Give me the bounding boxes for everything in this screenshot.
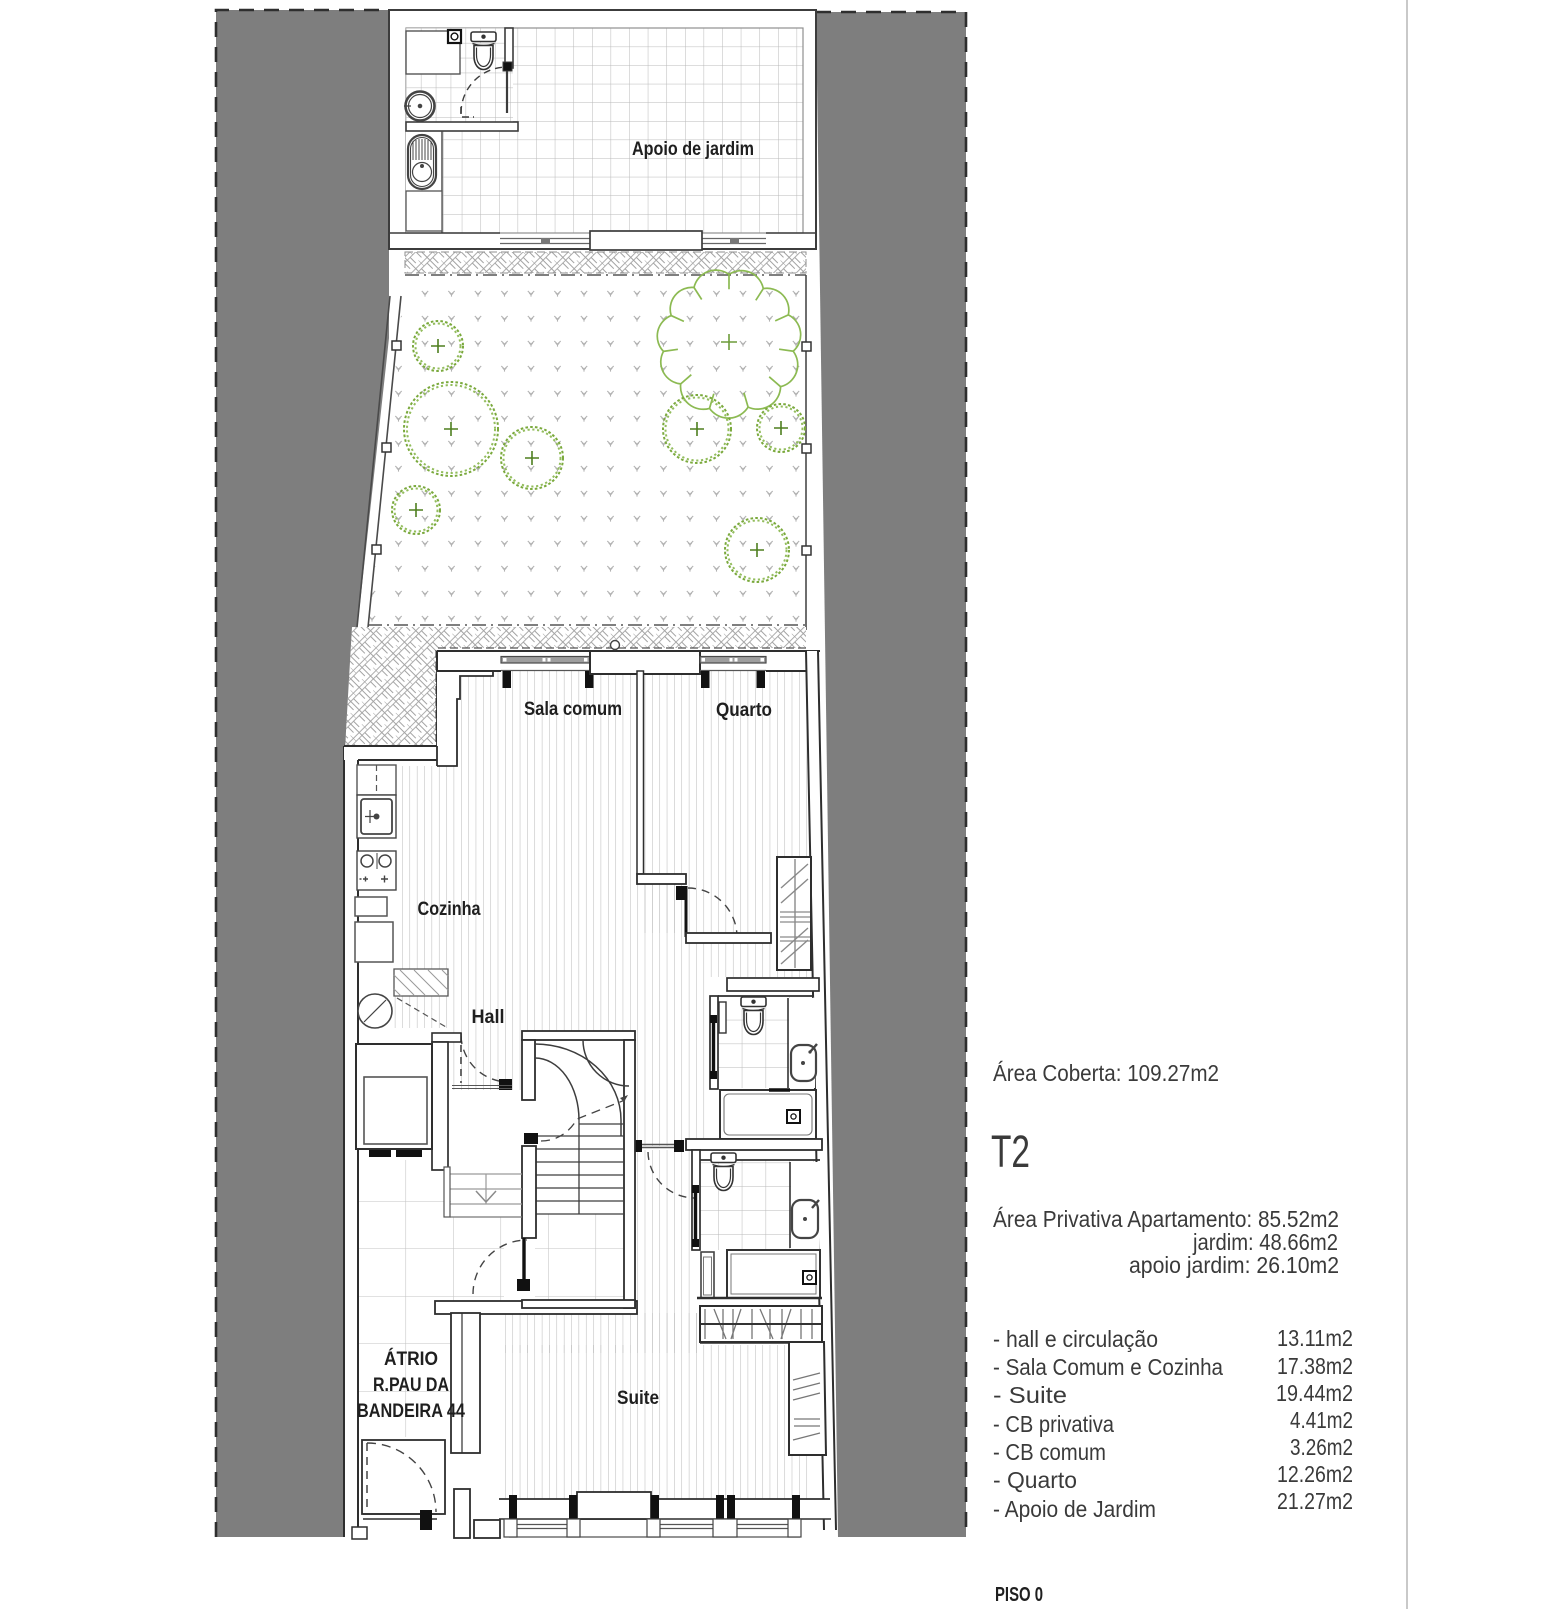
svg-text:3.26m2: 3.26m2: [1290, 1434, 1353, 1460]
svg-text:17.38m2: 17.38m2: [1277, 1353, 1353, 1379]
svg-text:19.44m2: 19.44m2: [1276, 1380, 1353, 1406]
svg-text:T2: T2: [991, 1126, 1030, 1177]
svg-text:Hall: Hall: [472, 1007, 505, 1028]
svg-text:Apoio de jardim: Apoio de jardim: [632, 139, 754, 160]
svg-text:apoio jardim: 26.10m2: apoio jardim: 26.10m2: [1129, 1252, 1339, 1278]
svg-text:21.27m2: 21.27m2: [1277, 1488, 1353, 1514]
svg-text:BANDEIRA 44: BANDEIRA 44: [357, 1401, 465, 1422]
svg-text:Quarto: Quarto: [716, 700, 772, 721]
svg-text:- CB comum: - CB comum: [993, 1439, 1106, 1465]
svg-text:Área Coberta: 109.27m2: Área Coberta: 109.27m2: [993, 1060, 1219, 1086]
svg-text:- CB privativa: - CB privativa: [993, 1411, 1114, 1437]
svg-text:Suite: Suite: [617, 1388, 659, 1409]
svg-text:- Suite: - Suite: [993, 1382, 1067, 1408]
svg-text:12.26m2: 12.26m2: [1277, 1461, 1353, 1487]
svg-text:PISO 0: PISO 0: [995, 1584, 1043, 1606]
svg-text:- Quarto: - Quarto: [993, 1467, 1077, 1493]
svg-text:Sala comum: Sala comum: [524, 699, 622, 720]
svg-text:13.11m2: 13.11m2: [1277, 1325, 1353, 1351]
svg-text:R.PAU DA: R.PAU DA: [373, 1375, 449, 1396]
svg-text:Cozinha: Cozinha: [418, 899, 481, 920]
svg-text:4.41m2: 4.41m2: [1290, 1407, 1353, 1433]
svg-text:ÁTRIO: ÁTRIO: [384, 1348, 438, 1370]
svg-text:- Apoio de Jardim: - Apoio de Jardim: [993, 1496, 1156, 1522]
svg-text:- Sala Comum e Cozinha: - Sala Comum e Cozinha: [993, 1354, 1223, 1380]
svg-text:- hall e circulação: - hall e circulação: [993, 1326, 1158, 1352]
